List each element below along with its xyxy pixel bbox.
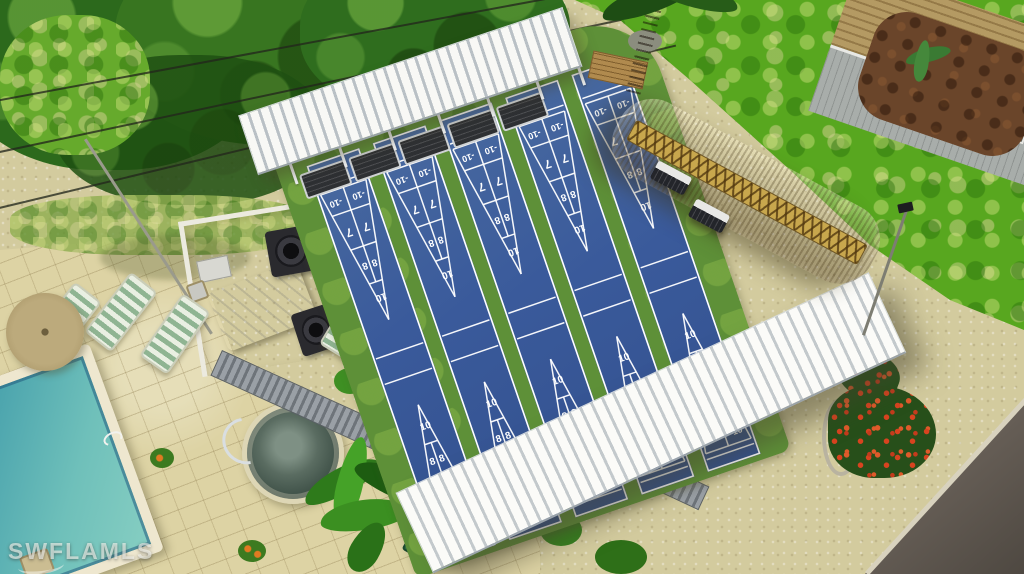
court-score-label: 10 [440, 267, 455, 281]
court-score-label: 10 [617, 351, 632, 365]
court-score-label: 10 [419, 419, 434, 433]
court-score-label: 7 [427, 196, 438, 212]
court-score-label: 10 [485, 397, 500, 411]
flower-pot [150, 448, 174, 468]
court-score-label: 10 [373, 290, 388, 304]
court-score-label: 7 [410, 202, 421, 218]
court-score-label: 7 [542, 156, 553, 172]
court-score-label: 10 [551, 374, 566, 388]
bush [595, 540, 647, 574]
court-score-label: 10 [572, 221, 587, 235]
court-score-label: 7 [559, 151, 570, 167]
court-score-label: 7 [476, 179, 487, 195]
court-score-label: 7 [361, 219, 372, 235]
court-score-label: 10 [638, 199, 653, 213]
patio-umbrella [6, 293, 84, 371]
court-score-label: 7 [493, 173, 504, 189]
court-score-label: 10 [506, 244, 521, 258]
flower-pot [238, 540, 266, 562]
court-score-label: 10 [683, 328, 698, 342]
aerial-photo-scene: -10-10778810108877-10-10-10-107788101088… [0, 0, 1024, 574]
court-score-label: 7 [344, 225, 355, 241]
flower-bed [828, 386, 936, 478]
